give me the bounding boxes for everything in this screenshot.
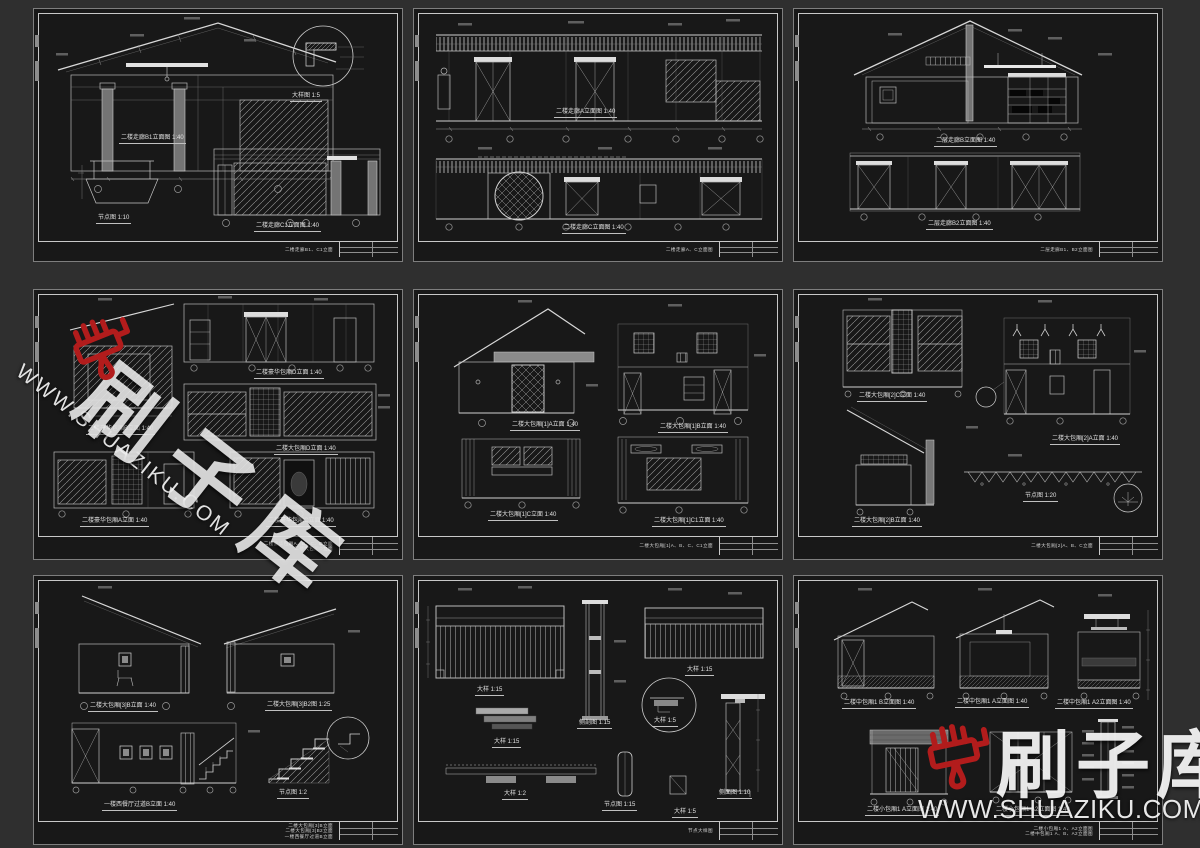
title-block: 二层走廊B1、B2立面图	[798, 241, 1158, 257]
title-block: 二楼豪华包厢A、B、C、D立面 二楼大包厢D立面	[38, 536, 398, 555]
drawing-caption: 节点图 1:2	[277, 790, 309, 799]
title-block-line: 二楼大包厢D立面	[38, 546, 333, 551]
title-block: 节点大样图	[418, 821, 778, 840]
title-block-line: 二楼走廊A、C立面图	[418, 247, 713, 252]
drawing-caption: 二楼走廊B1立面图 1:40	[119, 135, 186, 144]
drawing-caption: 大样 1:2	[502, 791, 528, 800]
sheet-8: 大样 1:15 侧剖图 1:15 大样 1:15 大样 1:5 大样 1:15 …	[413, 575, 783, 845]
drawing-caption: 二楼大包厢[1]B立面 1:40	[658, 424, 728, 433]
drawing-caption: 二楼豪华包厢D立面 1:40	[254, 370, 324, 379]
title-block: 二楼大包厢[3]B立面 二楼大包厢[3]B2立面 一楼西餐厅过道B立面	[38, 821, 398, 840]
drawing-caption: 二楼中包厢1 A立面图 1:40	[955, 699, 1029, 708]
drawing-caption: 大样 1:15	[492, 739, 521, 748]
drawing-caption: 二楼小包厢1 A2立面图 1:40	[994, 807, 1072, 816]
sheet-2: 二楼走廊A立面图 1:40 二楼走廊C立面图 1:40 二楼走廊A、C立面图	[413, 8, 783, 262]
drawing-caption: 二层走廊B2立面图 1:40	[926, 221, 993, 230]
title-block-table	[719, 242, 778, 257]
drawing-caption: 二楼大包厢[1]A立面 1:40	[510, 422, 580, 431]
title-block-table	[719, 822, 778, 840]
cad-linework	[798, 294, 1160, 539]
title-block-table	[339, 242, 398, 257]
title-block-line: 节点大样图	[418, 828, 713, 833]
drawing-caption: 二楼走廊A立面图 1:40	[554, 109, 617, 118]
drawing-caption: 大样 1:15	[475, 687, 504, 696]
sheet-1: 二楼走廊B1立面图 1:40 大样图 1:5 节点图 1:10 二楼走廊C1立面…	[33, 8, 403, 262]
drawing-caption: 大样 1:5	[672, 809, 698, 818]
sheet-7: 二楼大包厢[3]B立面 1:40 二楼大包厢[3]B2图 1:25 一楼西餐厅过…	[33, 575, 403, 845]
sheet-3: 二层走廊B立面图 1:40 二层走廊B2立面图 1:40 二层走廊B1、B2立面…	[793, 8, 1163, 262]
title-block-line: 二层走廊B1、B2立面图	[798, 247, 1093, 252]
title-block-line: 二楼走廊B1、C1立面	[38, 247, 333, 252]
title-block-line: 二楼中包厢1 A、B、A2立面图	[798, 831, 1093, 836]
title-block-table	[1099, 242, 1158, 257]
drawing-caption: 二楼豪华包厢B立面 1:40	[86, 426, 155, 435]
drawing-caption: 二楼大包厢[1]C1立面 1:40	[652, 518, 726, 527]
drawing-caption: 二层走廊B立面图 1:40	[934, 138, 997, 147]
drawing-caption: 二楼大包厢[3]B2图 1:25	[265, 702, 332, 711]
drawing-caption: 二楼豪华包厢C立面 1:40	[266, 518, 336, 527]
cad-linework	[38, 13, 400, 244]
title-block-table	[1099, 537, 1158, 555]
drawing-caption: 二楼中包厢1 B立面图 1:40	[842, 700, 916, 709]
sheet-5: 二楼大包厢[1]A立面 1:40 二楼大包厢[1]B立面 1:40 二楼大包厢[…	[413, 289, 783, 560]
drawing-caption: 大样 1:5	[652, 718, 678, 727]
drawing-caption: 一楼西餐厅过道B立面 1:40	[102, 802, 177, 811]
title-block-line: 二楼大包厢[2]A、B、C立面	[798, 543, 1093, 548]
drawing-caption: 二楼走廊C1立面图 1:40	[254, 223, 321, 232]
drawing-caption: 二楼大包厢[2]C立面 1:40	[857, 393, 927, 402]
cad-linework	[798, 13, 1160, 244]
title-block: 二楼走廊A、C立面图	[418, 241, 778, 257]
drawing-caption: 侧剖图 1:15	[577, 720, 612, 729]
title-block: 二楼大包厢[2]A、B、C立面	[798, 536, 1158, 555]
title-block-table	[339, 822, 398, 840]
title-block-line: 一楼西餐厅过道B立面	[38, 834, 333, 839]
cad-collage-page: { "canvas": {"width": 1200, "height": 84…	[0, 0, 1200, 848]
drawing-caption: 侧面图 1:10	[717, 790, 752, 799]
drawing-caption: 节点图 1:20	[1023, 493, 1058, 502]
title-block-table	[1099, 822, 1158, 840]
drawing-caption: 二楼中包厢1 A2立面图 1:40	[1055, 700, 1133, 709]
drawing-caption: 二楼走廊C立面图 1:40	[562, 225, 626, 234]
title-block: 二楼小包厢1 A、A2立面图 二楼中包厢1 A、B、A2立面图	[798, 821, 1158, 840]
watermark-brush-icon	[913, 711, 1008, 806]
drawing-caption: 二楼大包厢[2]B立面 1:40	[852, 518, 922, 527]
drawing-caption: 二楼豪华包厢A立面 1:40	[80, 518, 149, 527]
cad-linework	[418, 294, 780, 539]
title-block: 二楼大包厢[1]A、B、C、C1立面	[418, 536, 778, 555]
cad-linework	[418, 580, 780, 824]
drawing-caption: 二楼大包厢[2]A立面 1:40	[1050, 436, 1120, 445]
drawing-caption: 大样 1:15	[685, 667, 714, 676]
drawing-caption: 二楼大包厢[3]B立面 1:40	[88, 703, 158, 712]
drawing-caption: 二楼小包厢1 A立面图 1:40	[865, 807, 939, 816]
sheet-6: 二楼大包厢[2]C立面 1:40 二楼大包厢[2]A立面 1:40 二楼大包厢[…	[793, 289, 1163, 560]
title-block-line: 二楼大包厢[1]A、B、C、C1立面	[418, 543, 713, 548]
drawing-caption: 大样图 1:5	[290, 93, 322, 102]
title-block: 二楼走廊B1、C1立面	[38, 241, 398, 257]
drawing-caption: 节点图 1:10	[96, 215, 131, 224]
cad-linework	[38, 580, 400, 824]
drawing-caption: 节点图 1:15	[602, 802, 637, 811]
title-block-table	[719, 537, 778, 555]
title-block-table	[339, 537, 398, 555]
drawing-caption: 二楼大包厢D立面 1:40	[274, 446, 338, 455]
drawing-caption: 二楼大包厢[1]C立面 1:40	[488, 512, 558, 521]
sheet-9: 二楼中包厢1 B立面图 1:40 二楼中包厢1 A立面图 1:40 二楼中包厢1…	[793, 575, 1163, 845]
cad-linework	[418, 13, 780, 244]
